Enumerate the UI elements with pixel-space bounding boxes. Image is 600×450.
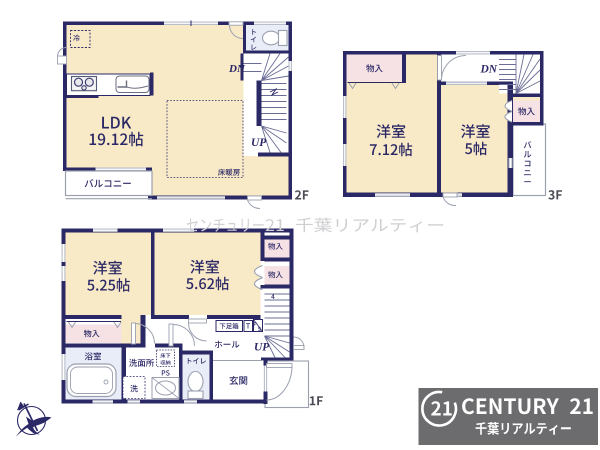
svg-text:DN: DN — [228, 63, 246, 75]
svg-text:UP: UP — [251, 137, 267, 149]
svg-text:UP: UP — [254, 342, 270, 354]
svg-text:DN: DN — [480, 64, 498, 76]
